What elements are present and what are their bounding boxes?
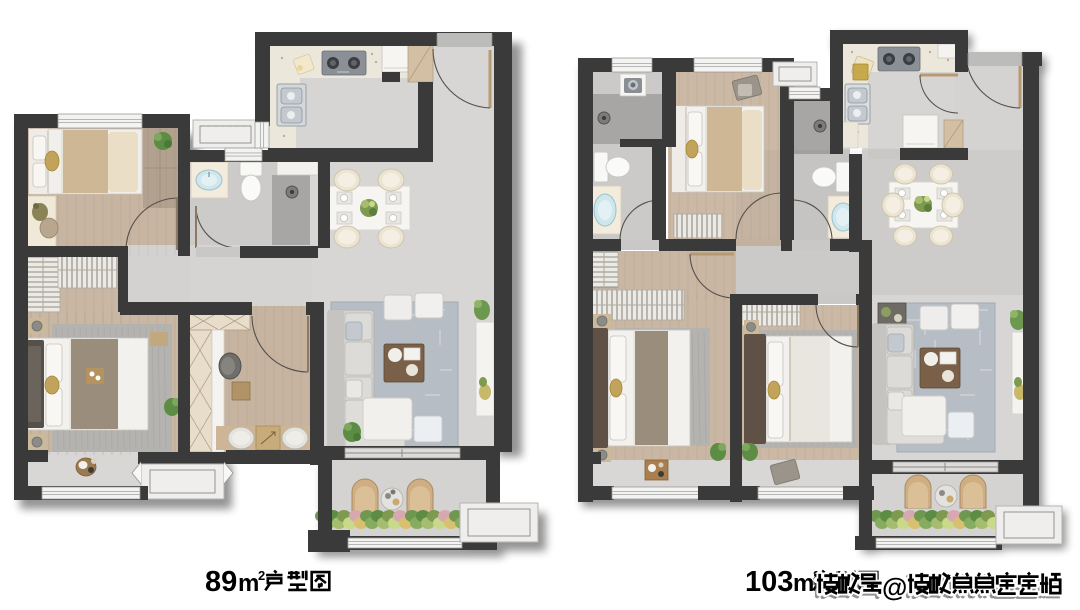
svg-text:89: 89 [205,566,237,598]
svg-text:@: @ [882,572,907,602]
svg-text:m: m [793,570,814,597]
svg-text:103: 103 [745,566,793,598]
svg-text:2: 2 [258,568,265,583]
svg-text:m: m [238,570,259,597]
